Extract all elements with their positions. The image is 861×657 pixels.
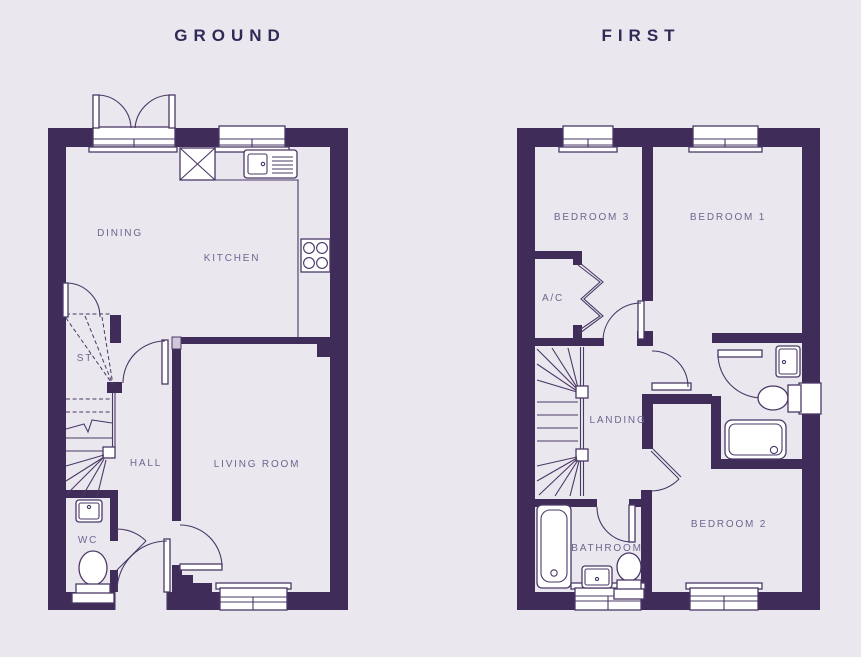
room-label-store: ST bbox=[77, 353, 93, 364]
room-label-living-room: LIVING ROOM bbox=[214, 459, 300, 470]
room-label-bedroom1: BEDROOM 1 bbox=[690, 212, 766, 223]
bath bbox=[537, 505, 571, 588]
kitchen-sink bbox=[244, 150, 297, 178]
kitchen-window bbox=[215, 126, 289, 152]
ensuite-door bbox=[718, 350, 762, 398]
bedroom3-window bbox=[559, 126, 617, 152]
floor-title-first: FIRST bbox=[601, 26, 680, 45]
room-label-bedroom2: BEDROOM 2 bbox=[691, 519, 767, 530]
room-label-wc: WC bbox=[78, 535, 98, 546]
wc-door bbox=[117, 529, 146, 570]
bedroom2-door bbox=[651, 449, 681, 491]
room-label-landing: LANDING bbox=[589, 415, 646, 426]
bathroom-door bbox=[597, 505, 635, 542]
ensuite-basin bbox=[776, 346, 800, 377]
first-stairs bbox=[537, 347, 588, 496]
room-label-bedroom3: BEDROOM 3 bbox=[554, 212, 630, 223]
bedroom1-door bbox=[652, 351, 691, 390]
ensuite-toilet bbox=[758, 385, 801, 412]
wc-toilet bbox=[72, 551, 114, 603]
bedroom3-door bbox=[603, 301, 644, 341]
ensuite-window bbox=[799, 383, 821, 414]
hob bbox=[301, 239, 330, 272]
appliance-space bbox=[180, 148, 215, 180]
living-room-door bbox=[180, 525, 222, 570]
room-label-hall: HALL bbox=[130, 458, 162, 469]
floorplan-canvas: GROUND bbox=[0, 0, 861, 657]
floorplan-svg: GROUND bbox=[0, 0, 861, 657]
room-label-bathroom: BATHROOM bbox=[571, 543, 642, 554]
room-label-kitchen: KITCHEN bbox=[204, 253, 261, 264]
bathroom-basin bbox=[582, 566, 612, 588]
ground-floor-plan: GROUND bbox=[48, 26, 348, 610]
front-door bbox=[115, 539, 170, 610]
wc-basin bbox=[76, 500, 102, 522]
floor-title-ground: GROUND bbox=[174, 26, 286, 45]
room-label-ac: A/C bbox=[542, 293, 564, 304]
first-floor-plan: FIRST bbox=[517, 26, 821, 610]
dining-door bbox=[63, 283, 100, 317]
airing-cupboard-bifold bbox=[578, 263, 603, 333]
living-room-window bbox=[216, 583, 291, 610]
bedroom2-window bbox=[686, 583, 762, 610]
ground-stairs bbox=[66, 314, 115, 497]
shower bbox=[725, 420, 786, 459]
french-doors bbox=[89, 95, 177, 152]
room-label-dining: DINING bbox=[97, 228, 143, 239]
bathroom-toilet bbox=[614, 553, 644, 599]
bedroom1-window bbox=[689, 126, 762, 152]
kitchen-hall-door bbox=[123, 340, 168, 384]
